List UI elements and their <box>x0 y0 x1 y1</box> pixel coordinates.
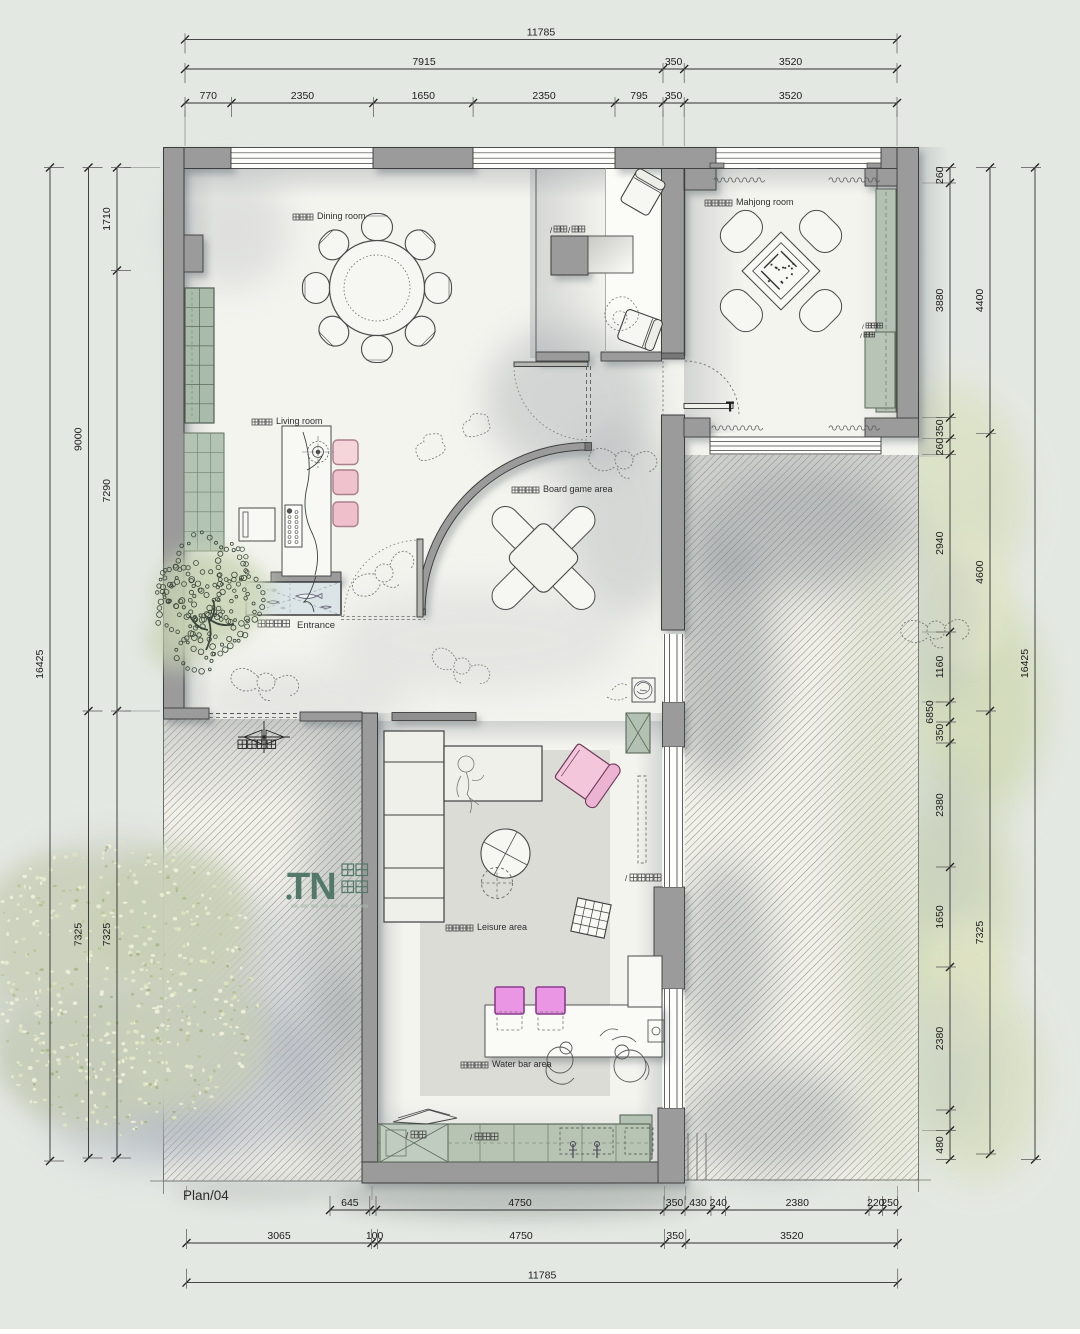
svg-text:240: 240 <box>709 1197 727 1209</box>
svg-text:3065: 3065 <box>267 1230 291 1242</box>
svg-text:9000: 9000 <box>73 427 85 451</box>
svg-text:11785: 11785 <box>528 1270 557 1282</box>
svg-text:/: / <box>860 333 862 340</box>
svg-text:Mahjong room: Mahjong room <box>736 197 794 207</box>
svg-text:Plan/04: Plan/04 <box>183 1188 229 1203</box>
svg-text:Entrance: Entrance <box>297 620 335 631</box>
svg-text:2380: 2380 <box>934 793 946 817</box>
svg-text:2380: 2380 <box>786 1197 810 1209</box>
svg-text:4600: 4600 <box>974 560 986 584</box>
svg-text:7325: 7325 <box>101 923 113 947</box>
svg-text:350: 350 <box>666 1230 684 1242</box>
svg-text:3520: 3520 <box>779 56 803 68</box>
svg-text:Dining room: Dining room <box>317 211 366 221</box>
svg-text:1710: 1710 <box>101 207 113 231</box>
svg-text:350: 350 <box>665 56 683 68</box>
svg-text:6850: 6850 <box>924 700 936 724</box>
svg-text:3520: 3520 <box>780 1230 804 1242</box>
svg-text:350: 350 <box>665 90 683 102</box>
svg-text:16425: 16425 <box>34 649 46 678</box>
svg-text:260: 260 <box>934 438 946 456</box>
svg-text:1650: 1650 <box>934 905 946 929</box>
svg-text:1650: 1650 <box>412 90 436 102</box>
svg-text:/: / <box>862 324 864 331</box>
svg-text:Living room: Living room <box>276 416 323 426</box>
svg-text:2350: 2350 <box>532 90 556 102</box>
svg-text:430: 430 <box>689 1197 707 1209</box>
svg-text:3880: 3880 <box>934 288 946 312</box>
svg-text:1160: 1160 <box>934 656 946 679</box>
svg-text:350: 350 <box>934 724 946 742</box>
svg-text:3520: 3520 <box>779 90 803 102</box>
svg-text:7290: 7290 <box>101 479 113 503</box>
svg-text:770: 770 <box>199 90 217 102</box>
svg-text:480: 480 <box>934 1136 946 1154</box>
svg-text:2350: 2350 <box>291 90 315 102</box>
svg-text:Water bar area: Water bar area <box>492 1059 552 1069</box>
svg-text:250: 250 <box>881 1197 899 1209</box>
svg-text:260: 260 <box>934 166 946 184</box>
svg-text:350: 350 <box>666 1197 684 1209</box>
svg-text:7325: 7325 <box>974 921 986 945</box>
svg-text:7325: 7325 <box>73 923 85 947</box>
svg-text:2380: 2380 <box>934 1027 946 1051</box>
svg-text:4750: 4750 <box>509 1230 533 1242</box>
svg-text:4400: 4400 <box>974 289 986 313</box>
svg-text:645: 645 <box>341 1197 359 1209</box>
svg-text:11785: 11785 <box>527 26 556 38</box>
svg-text:7915: 7915 <box>412 56 436 68</box>
svg-text:Leisure area: Leisure area <box>477 922 527 932</box>
svg-text:795: 795 <box>630 90 648 102</box>
svg-text:TN: TN <box>287 866 336 908</box>
svg-text:100: 100 <box>366 1230 384 1242</box>
svg-text:16425: 16425 <box>1019 649 1031 678</box>
svg-text:Board game area: Board game area <box>543 484 613 494</box>
svg-text:350: 350 <box>934 419 946 437</box>
svg-text:2940: 2940 <box>934 531 946 555</box>
svg-text:4750: 4750 <box>508 1197 532 1209</box>
